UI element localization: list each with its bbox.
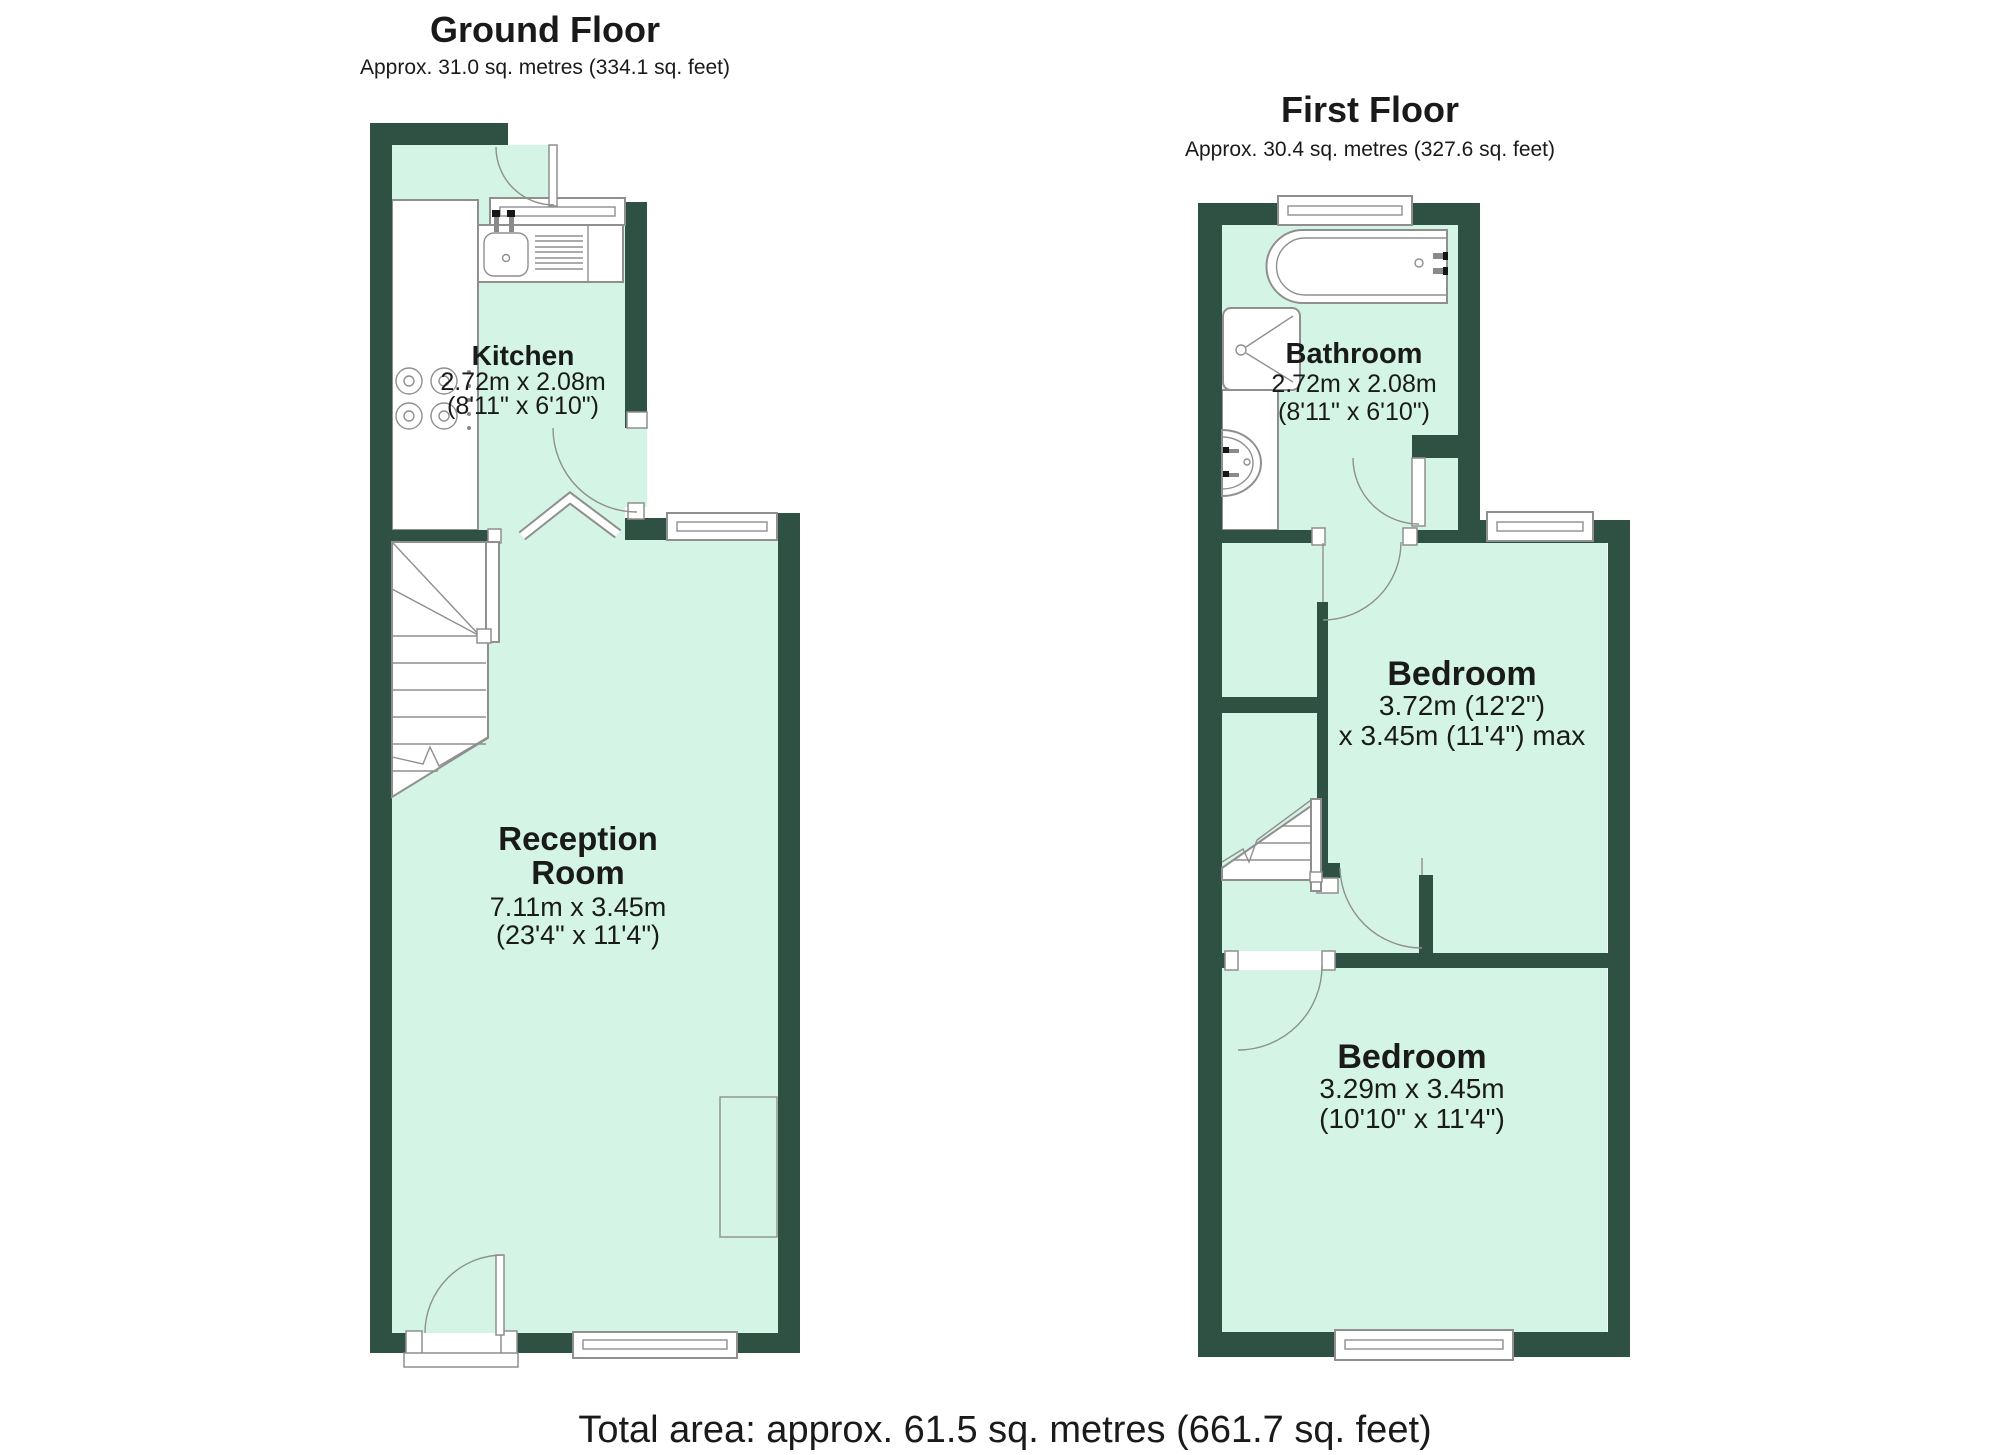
- bathroom-dim-metric: 2.72m x 2.08m: [1271, 370, 1436, 398]
- first-floor-title: First Floor: [1281, 89, 1459, 130]
- bathroom-dim-imperial: (8'11" x 6'10"): [1278, 398, 1430, 426]
- kitchen-counter-left: [392, 200, 478, 530]
- door-leaf: [1412, 458, 1425, 526]
- floorplan-image: Ground Floor Approx. 31.0 sq. metres (33…: [0, 0, 2000, 1455]
- wall-jamb: [488, 529, 501, 543]
- bedroom-front-dim-metric: 3.29m x 3.45m: [1319, 1073, 1504, 1104]
- bathtub-icon: [1267, 230, 1449, 303]
- front-door-opening: [420, 1333, 503, 1353]
- reception-front-window: [573, 1332, 737, 1358]
- bedroom-rear-dim-line1: 3.72m (12'2"): [1379, 690, 1545, 721]
- reception-side-window: [667, 513, 777, 540]
- reception-label-line2: Room: [531, 854, 625, 891]
- first-floor-plan: First Floor Approx. 30.4 sq. metres (327…: [1185, 89, 1630, 1360]
- bathroom-label: Bathroom: [1286, 338, 1423, 370]
- door-jamb: [627, 412, 647, 428]
- first-floor-area-subtitle: Approx. 30.4 sq. metres (327.6 sq. feet): [1185, 138, 1555, 161]
- ground-floor-area-subtitle: Approx. 31.0 sq. metres (334.1 sq. feet): [360, 56, 730, 79]
- bedroom-front-label: Bedroom: [1337, 1038, 1486, 1076]
- door-jamb: [1322, 951, 1335, 970]
- kitchen-dim-imperial: (8'11" x 6'10"): [447, 392, 599, 420]
- door-sill: [404, 1353, 518, 1367]
- bedroom-front-window: [1335, 1330, 1513, 1360]
- door-leaf: [549, 145, 557, 206]
- door-jamb: [1403, 528, 1417, 545]
- reception-label-line1: Reception: [498, 820, 658, 857]
- ground-floor-title: Ground Floor: [430, 9, 660, 50]
- total-area-label: Total area: approx. 61.5 sq. metres (661…: [578, 1409, 1431, 1451]
- door-jamb: [628, 503, 644, 519]
- bedroom-rear-label: Bedroom: [1387, 655, 1536, 693]
- bedroom-front-dim-imperial: (10'10" x 11'4"): [1319, 1103, 1505, 1134]
- door-leaf: [496, 1255, 504, 1335]
- bathroom-window: [1278, 196, 1412, 225]
- reception-dim-metric: 7.11m x 3.45m: [490, 892, 667, 922]
- bedroom-rear-dim-line2: x 3.45m (11'4") max: [1339, 720, 1586, 751]
- stair-newel-post: [477, 629, 491, 643]
- door-jamb: [1225, 951, 1238, 970]
- reception-dim-imperial: (23'4" x 11'4"): [496, 920, 660, 950]
- door-jamb: [1312, 528, 1325, 545]
- bedroom-rear-window: [1487, 512, 1593, 541]
- kitchen-label: Kitchen: [472, 340, 575, 371]
- ground-floor-plan: Ground Floor Approx. 31.0 sq. metres (33…: [360, 9, 800, 1367]
- bedroom-front-door-opening: [1238, 951, 1322, 970]
